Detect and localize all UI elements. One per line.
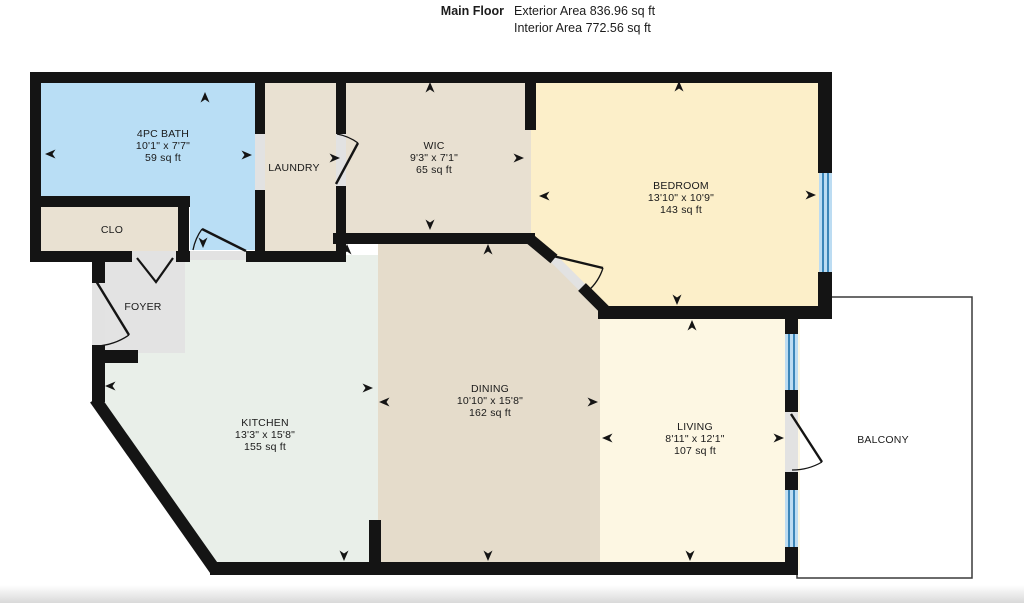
- living-window-lower-glass: [785, 490, 798, 547]
- room-name: KITCHEN: [235, 417, 295, 429]
- room-area: 59 sq ft: [136, 152, 190, 164]
- room-name: LIVING: [665, 421, 724, 433]
- wall-living-right-1: [785, 306, 798, 334]
- room-dims: 9'3" x 7'1": [410, 152, 458, 164]
- wall-living-right-3: [785, 472, 798, 490]
- living-window-lower: [785, 490, 798, 547]
- room-label-balcony: BALCONY: [857, 434, 909, 446]
- wall-living-right-2: [785, 390, 798, 412]
- room-area: 65 sq ft: [410, 164, 458, 176]
- room-dims: 13'3" x 15'8": [235, 429, 295, 441]
- room-label-living: LIVING 8'11" x 12'1" 107 sq ft: [665, 421, 724, 457]
- living-window-upper: [785, 334, 798, 390]
- floorplan-canvas: Main Floor Exterior Area 836.96 sq ft In…: [0, 0, 1024, 603]
- room-label-foyer: FOYER: [124, 301, 161, 313]
- room-label-bedroom: BEDROOM 13'10" x 10'9" 143 sq ft: [648, 180, 714, 216]
- room-label-dining: DINING 10'10" x 15'8" 162 sq ft: [457, 383, 523, 419]
- room-name: DINING: [457, 383, 523, 395]
- room-dims: 8'11" x 12'1": [665, 433, 724, 445]
- wall-left-entry-upper: [92, 255, 105, 283]
- room-area: 162 sq ft: [457, 407, 523, 419]
- wall-top: [30, 72, 832, 83]
- room-dims: 10'10" x 15'8": [457, 395, 523, 407]
- room-label-laundry: LAUNDRY: [268, 162, 319, 174]
- wall-right-lower: [818, 272, 832, 319]
- wall-left-upper: [30, 72, 41, 262]
- bedroom-window: [819, 173, 832, 272]
- wall-bath-closet: [30, 196, 190, 207]
- wall-right-upper: [818, 72, 832, 173]
- room-label-kitchen: KITCHEN 13'3" x 15'8" 155 sq ft: [235, 417, 295, 453]
- room-area: 107 sq ft: [665, 445, 724, 457]
- room-area: 143 sq ft: [648, 204, 714, 216]
- room-name: BEDROOM: [648, 180, 714, 192]
- wall-foyer-stub: [105, 350, 138, 363]
- room-name: 4PC BATH: [136, 128, 190, 140]
- wall-bottom: [210, 562, 798, 575]
- room-name: CLO: [101, 224, 123, 236]
- room-name: WIC: [410, 140, 458, 152]
- bath-laundry-opening: [255, 134, 265, 190]
- wall-bath-laundry-lower: [255, 190, 265, 262]
- room-dims: 13'10" x 10'9": [648, 192, 714, 204]
- bedroom-window-glass: [819, 173, 832, 272]
- living-window-upper-glass: [785, 334, 798, 390]
- wall-laundry-wic-upper: [336, 72, 346, 134]
- room-area: 155 sq ft: [235, 441, 295, 453]
- room-name: BALCONY: [857, 434, 909, 446]
- room-dims: 10'1" x 7'7": [136, 140, 190, 152]
- laundry-wic-door-opening: [336, 134, 346, 186]
- wall-closet-bottom: [30, 251, 132, 262]
- room-label-bath: 4PC BATH 10'1" x 7'7" 59 sq ft: [136, 128, 190, 164]
- wall-wic-bottom: [333, 233, 535, 244]
- wall-left-entry-lower: [92, 345, 105, 402]
- wall-kitchen-dining-stub: [369, 520, 381, 565]
- room-name: LAUNDRY: [268, 162, 319, 174]
- wall-wic-bedroom: [525, 72, 536, 130]
- bath-door-opening: [190, 251, 246, 260]
- room-label-clo: CLO: [101, 224, 123, 236]
- wall-bath-laundry-upper: [255, 72, 265, 134]
- wall-closet-bottom-stub: [176, 251, 190, 262]
- room-label-wic: WIC 9'3" x 7'1" 65 sq ft: [410, 140, 458, 176]
- room-name: FOYER: [124, 301, 161, 313]
